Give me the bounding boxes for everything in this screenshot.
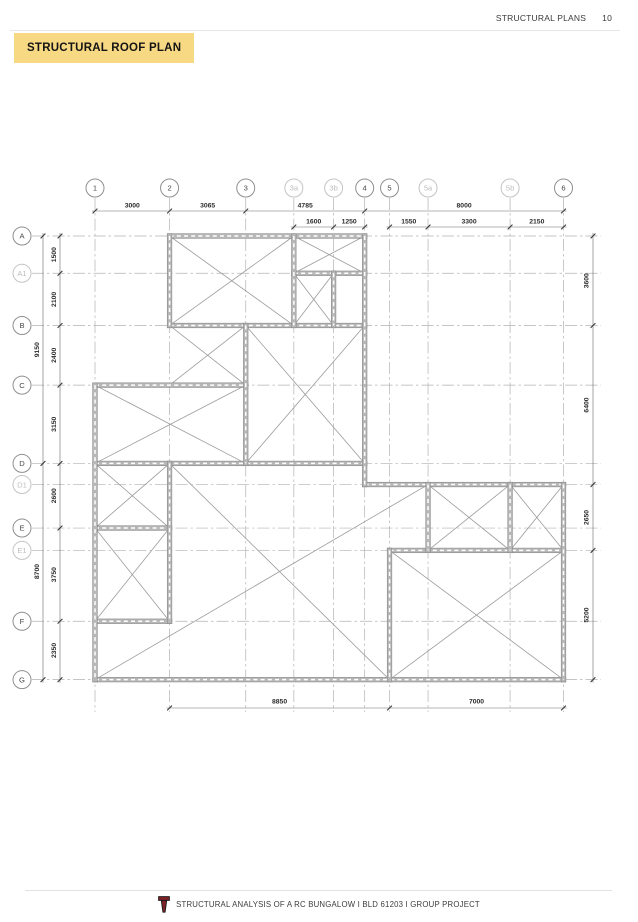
svg-text:3b: 3b xyxy=(329,184,337,193)
svg-text:2350: 2350 xyxy=(51,643,58,658)
grid-bubble-4: 4 xyxy=(356,179,374,197)
svg-text:2150: 2150 xyxy=(529,219,544,226)
footer-label: STRUCTURAL ANALYSIS OF A RC BUNGALOW I B… xyxy=(176,900,480,909)
svg-text:2400: 2400 xyxy=(51,348,58,363)
grid-bubble-G: G xyxy=(13,671,31,689)
svg-text:2600: 2600 xyxy=(51,488,58,503)
footer-rule xyxy=(25,890,612,891)
grid-bubble-E: E xyxy=(13,519,31,537)
svg-text:2100: 2100 xyxy=(51,292,58,307)
svg-text:D: D xyxy=(19,459,25,468)
grid-bubble-F: F xyxy=(13,612,31,630)
svg-text:4: 4 xyxy=(363,184,367,193)
svg-text:A1: A1 xyxy=(17,269,26,278)
svg-text:G: G xyxy=(19,675,25,684)
grid-bubble-C: C xyxy=(13,376,31,394)
svg-text:1: 1 xyxy=(93,184,97,193)
svg-text:3300: 3300 xyxy=(462,219,477,226)
svg-text:7000: 7000 xyxy=(469,699,484,706)
grid-bubble-5: 5 xyxy=(381,179,399,197)
svg-text:1250: 1250 xyxy=(342,219,357,226)
svg-text:3a: 3a xyxy=(290,184,299,193)
grid-bubble-5a: 5a xyxy=(419,179,437,197)
svg-text:3600: 3600 xyxy=(584,273,591,288)
slab-diagonals xyxy=(95,236,564,680)
svg-text:1500: 1500 xyxy=(51,247,58,262)
dimensions: 3000306547858000160012501550330021508850… xyxy=(34,203,595,711)
svg-text:5b: 5b xyxy=(506,184,514,193)
svg-text:3750: 3750 xyxy=(51,567,58,582)
svg-text:1600: 1600 xyxy=(306,219,321,226)
svg-text:5a: 5a xyxy=(424,184,433,193)
roof-plan-drawing: 3000306547858000160012501550330021508850… xyxy=(0,0,638,922)
walls xyxy=(93,234,566,682)
svg-text:6: 6 xyxy=(561,184,565,193)
svg-text:8850: 8850 xyxy=(272,699,287,706)
grid-bubble-2: 2 xyxy=(161,179,179,197)
svg-text:2650: 2650 xyxy=(584,510,591,525)
grid-bubble-1: 1 xyxy=(86,179,104,197)
svg-text:4785: 4785 xyxy=(298,203,313,210)
svg-text:2: 2 xyxy=(167,184,171,193)
grid-bubble-3: 3 xyxy=(237,179,255,197)
grid-bubble-3a: 3a xyxy=(285,179,303,197)
svg-text:9150: 9150 xyxy=(34,342,41,357)
grid-bubble-3b: 3b xyxy=(325,179,343,197)
grid-bubble-5b: 5b xyxy=(501,179,519,197)
grid-bubble-D: D xyxy=(13,454,31,472)
svg-text:3150: 3150 xyxy=(51,416,58,431)
svg-text:D1: D1 xyxy=(17,480,27,489)
svg-text:8700: 8700 xyxy=(34,564,41,579)
grid-bubble-A1: A1 xyxy=(13,264,31,282)
page-footer: STRUCTURAL ANALYSIS OF A RC BUNGALOW I B… xyxy=(0,896,638,913)
grid-bubble-6: 6 xyxy=(555,179,573,197)
svg-text:5200: 5200 xyxy=(584,607,591,622)
svg-text:C: C xyxy=(19,381,25,390)
svg-text:E1: E1 xyxy=(17,546,26,555)
grid-bubble-B: B xyxy=(13,316,31,334)
svg-text:3: 3 xyxy=(244,184,248,193)
svg-text:8000: 8000 xyxy=(457,203,472,210)
svg-text:3065: 3065 xyxy=(200,203,215,210)
svg-text:1550: 1550 xyxy=(401,219,416,226)
svg-text:B: B xyxy=(19,321,24,330)
svg-text:F: F xyxy=(20,617,25,626)
torch-logo-icon xyxy=(158,896,170,913)
svg-text:3000: 3000 xyxy=(125,203,140,210)
grid-bubble-A: A xyxy=(13,227,31,245)
svg-text:5: 5 xyxy=(387,184,391,193)
svg-text:E: E xyxy=(19,524,24,533)
grid-bubble-E1: E1 xyxy=(13,541,31,559)
svg-text:6400: 6400 xyxy=(584,397,591,412)
grid-bubble-D1: D1 xyxy=(13,476,31,494)
